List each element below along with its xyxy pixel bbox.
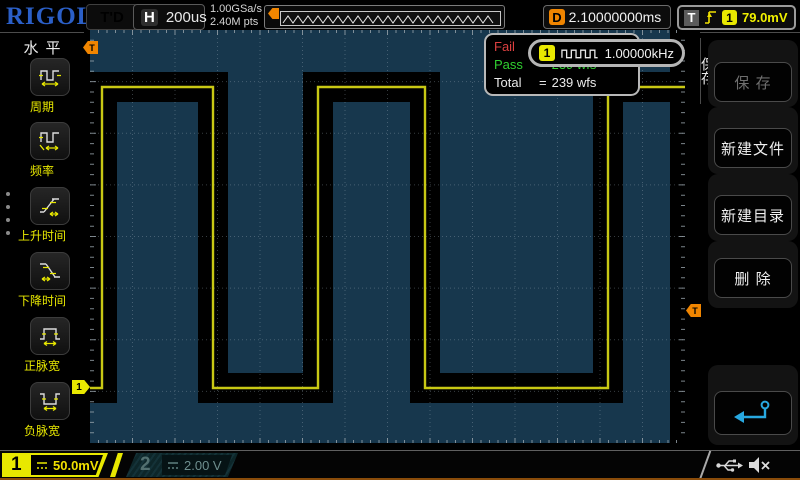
positive-pulse-width-icon — [37, 324, 63, 348]
left-menu-title: 水平 — [0, 37, 84, 58]
delay-value: 2.10000000ms — [565, 9, 665, 25]
horizontal-label: H — [141, 9, 158, 26]
channel2-scale-panel: 2.00 V — [162, 455, 232, 475]
menu-item-negative-pulse-width[interactable]: 负脉宽 — [0, 382, 84, 446]
memory-waveform-preview — [280, 11, 501, 26]
softkey-slot: 新建文件 — [708, 107, 798, 174]
frequency-icon — [37, 129, 63, 153]
channel1-scale: 50.0mV — [53, 458, 99, 473]
trigger-position-strip-arrow-icon — [268, 8, 279, 19]
channel2-scale: 2.00 V — [184, 458, 222, 473]
channel2-status[interactable]: 2 2.00 V — [126, 453, 238, 477]
new-file-button[interactable]: 新建文件 — [714, 128, 792, 168]
menu-item-label: 上升时间 — [0, 227, 84, 244]
page-dot — [6, 218, 10, 222]
trigger-status-text: T'D — [100, 9, 124, 26]
channel1-status[interactable]: 1 50.0mV — [2, 453, 108, 477]
positive-pulse-width-button[interactable] — [30, 317, 70, 355]
menu-item-label: 下降时间 — [0, 292, 84, 309]
left-menu-divider — [0, 32, 84, 33]
trigger-status-badge: T'D — [86, 4, 138, 30]
trigger-source-badge: 1 — [722, 10, 737, 25]
softkey-slot: 保 存 — [708, 40, 798, 107]
trigger-level-marker[interactable]: T — [686, 304, 701, 317]
channel1-scale-panel: 50.0mV — [31, 455, 103, 475]
page-dot — [6, 205, 10, 209]
page-dot — [6, 231, 10, 235]
menu-item-positive-pulse-width[interactable]: 正脉宽 — [0, 317, 84, 381]
trigger-label: T — [684, 10, 699, 26]
period-button[interactable] — [30, 58, 70, 96]
trigger-info-box[interactable]: T 1 79.0mV — [677, 5, 796, 30]
menu-item-label: 周期 — [0, 98, 84, 115]
fall-time-icon — [37, 259, 63, 283]
back-button[interactable] — [714, 391, 792, 435]
acquisition-info: 1.00GSa/s 2.40M pts — [210, 3, 262, 29]
channel1-stripe — [110, 453, 123, 477]
page-dot — [6, 192, 10, 196]
oscilloscope-screen: RIGOL T'D H 200us 1.00GSa/s 2.40M pts D … — [0, 0, 800, 480]
frequency-value: 1.00000kHz — [605, 46, 674, 61]
frequency-button[interactable] — [30, 122, 70, 160]
save-button[interactable]: 保 存 — [714, 62, 792, 102]
softkey-slot — [708, 365, 798, 445]
menu-item-fall-time[interactable]: 下降时间 — [0, 252, 84, 316]
menu-item-frequency[interactable]: 频率 — [0, 122, 84, 186]
usb-icon — [716, 457, 743, 474]
rise-time-button[interactable] — [30, 187, 70, 225]
menu-item-label: 频率 — [0, 162, 84, 179]
channel1-ground-marker[interactable]: 1 — [72, 380, 90, 394]
memory-depth: 2.40M pts — [210, 16, 262, 29]
rise-time-icon — [37, 194, 63, 218]
dc-coupling-icon — [167, 460, 179, 471]
rigol-logo: RIGOL — [6, 3, 94, 31]
channel1-number: 1 — [11, 454, 22, 476]
timebase-box[interactable]: H 200us — [133, 4, 205, 30]
timebase-value: 200us — [166, 9, 207, 26]
negative-pulse-width-icon — [37, 389, 63, 413]
fall-time-button[interactable] — [30, 252, 70, 290]
period-icon — [37, 65, 63, 89]
status-divider — [699, 451, 711, 480]
menu-item-label: 负脉宽 — [0, 422, 84, 439]
speaker-muted-icon — [748, 455, 771, 475]
menu-item-period[interactable]: 周期 — [0, 58, 84, 122]
menu-item-label: 正脉宽 — [0, 357, 84, 374]
trigger-level-value: 79.0mV — [742, 10, 788, 25]
waveform-position-strip[interactable] — [264, 5, 505, 29]
dc-coupling-icon — [36, 460, 48, 471]
sample-rate: 1.00GSa/s — [210, 3, 262, 16]
frequency-counter-popup: 1 1.00000kHz — [528, 39, 685, 67]
return-arrow-icon — [730, 398, 776, 428]
softkey-slot: 删 除 — [708, 241, 798, 308]
delete-button[interactable]: 删 除 — [714, 258, 792, 298]
softkey-slot: 新建目录 — [708, 174, 798, 241]
preview-zigzag-icon — [281, 12, 500, 25]
delay-label: D — [549, 9, 565, 25]
right-menu-divider — [700, 32, 800, 33]
trigger-position-marker[interactable]: T — [83, 41, 98, 54]
square-wave-icon — [561, 46, 599, 60]
new-directory-button[interactable]: 新建目录 — [714, 195, 792, 235]
bottom-status-bar: 1 50.0mV 2 2.00 V — [0, 450, 800, 478]
total-row: Total = 239 wfs — [494, 75, 630, 90]
channel2-number: 2 — [140, 454, 151, 476]
trigger-slope-icon — [704, 9, 717, 26]
menu-item-rise-time[interactable]: 上升时间 — [0, 187, 84, 251]
trigger-delay-box[interactable]: D 2.10000000ms — [543, 5, 671, 29]
channel1-badge: 1 — [539, 45, 555, 61]
negative-pulse-width-button[interactable] — [30, 382, 70, 420]
